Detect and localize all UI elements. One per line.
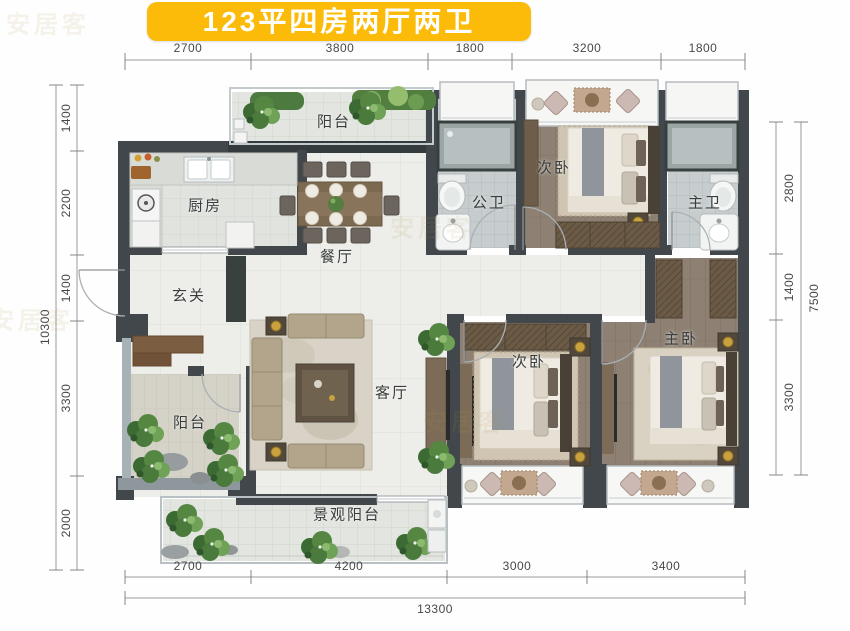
cabinet-bedroom-top	[524, 120, 538, 206]
room-label-balcony-top: 阳台	[317, 111, 351, 132]
room-label-living: 客厅	[375, 382, 409, 403]
dim-left-4: 2000	[59, 509, 73, 538]
wardrobe-master-left	[656, 260, 682, 318]
dim-left-3: 3300	[59, 384, 73, 413]
wardrobe-master-right	[710, 260, 736, 318]
floor-plan-svg	[0, 0, 850, 631]
dim-top-3: 3200	[573, 41, 602, 55]
nightstand	[718, 333, 738, 351]
dining-centerpiece	[328, 196, 344, 212]
dim-right-0: 2800	[782, 174, 796, 203]
dim-top-2: 1800	[456, 41, 485, 55]
wardrobe-bedroom-bottom	[464, 324, 586, 350]
bay-rug	[641, 471, 677, 495]
dim-top-0: 2700	[174, 41, 203, 55]
dim-right-1: 1400	[782, 273, 796, 302]
tv-console-master	[602, 362, 614, 454]
bay-ball	[465, 480, 477, 492]
room-label-bedroom-top: 次卧	[537, 157, 571, 178]
dim-right-total: 7500	[807, 284, 821, 313]
dim-bottom-2: 3000	[503, 559, 532, 573]
dim-left-2: 1400	[59, 274, 73, 303]
side-table	[266, 443, 286, 461]
room-label-bedroom-master: 主卧	[664, 328, 698, 349]
dim-right-2: 3300	[782, 383, 796, 412]
watermark-1: 安居客	[390, 209, 474, 244]
room-label-bath-public: 公卫	[472, 192, 506, 213]
floor-plan-page: 123平四房两厅两卫 阳台厨房餐厅公卫次卧主卫玄关阳台客厅次卧主卧景观阳台270…	[0, 0, 850, 631]
dim-top-4: 1800	[689, 41, 718, 55]
bay-rug	[501, 471, 537, 495]
side-table	[266, 317, 286, 335]
watermark-0: 安居客	[6, 5, 90, 40]
plan-title: 123平四房两厅两卫	[147, 2, 531, 41]
dim-left-1: 2200	[59, 189, 73, 218]
bay-window-bath-public	[440, 82, 514, 122]
nightstand	[718, 447, 738, 465]
room-label-bedroom-bottom: 次卧	[512, 351, 546, 372]
bay-ball	[702, 480, 714, 492]
floor-corridor	[455, 255, 648, 316]
dim-left-0: 1400	[59, 104, 73, 133]
watermark-2: 安居客	[423, 403, 507, 438]
headboard-bedroom-top	[648, 126, 660, 214]
room-label-balcony-view: 景观阳台	[313, 504, 381, 525]
nightstand	[570, 338, 590, 356]
watermark-3: 安居客	[0, 301, 74, 336]
kitchen-board	[131, 166, 151, 179]
dim-bottom-total: 13300	[417, 602, 453, 616]
bay-rug	[574, 88, 610, 112]
room-label-entry: 玄关	[172, 285, 206, 306]
kitchen-fridge	[132, 221, 160, 247]
room-label-bath-master: 主卫	[688, 192, 722, 213]
room-label-dining: 餐厅	[320, 246, 354, 267]
room-label-balcony-left: 阳台	[173, 412, 207, 433]
dim-top-1: 3800	[326, 41, 355, 55]
headboard-master	[726, 352, 737, 446]
dim-bottom-0: 2700	[174, 559, 203, 573]
headboard-bedroom-bottom	[560, 354, 572, 452]
dim-bottom-3: 3400	[652, 559, 681, 573]
bay-ball	[532, 98, 544, 110]
room-label-kitchen: 厨房	[188, 195, 222, 216]
kitchen-appliance	[226, 222, 254, 248]
shoe-cabinet	[133, 336, 203, 353]
wardrobe-bedroom-top	[556, 222, 660, 248]
bay-window-bath-master	[666, 82, 738, 122]
dim-bottom-1: 4200	[335, 559, 364, 573]
nightstand	[570, 448, 590, 466]
